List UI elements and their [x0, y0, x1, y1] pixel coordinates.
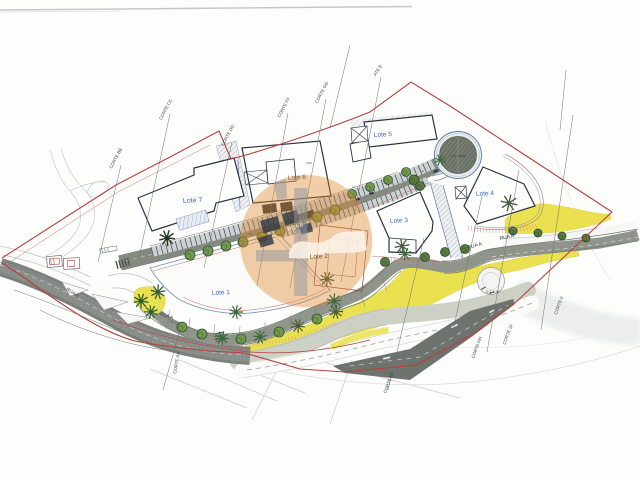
svg-text:cv: cv: [352, 185, 356, 189]
svg-text:Lote 6: Lote 6: [288, 174, 307, 182]
svg-text:C.C. 49.00: C.C. 49.00: [451, 154, 466, 158]
svg-text:Lote 4: Lote 4: [476, 190, 495, 198]
svg-text:cv: cv: [249, 232, 253, 236]
svg-text:Lote 2: Lote 2: [310, 253, 329, 261]
svg-text:ev: ev: [421, 169, 425, 173]
svg-text:Lote 1: Lote 1: [212, 289, 231, 297]
svg-text:Lote 5: Lote 5: [374, 131, 393, 139]
svg-text:D.T. 6.00: D.T. 6.00: [486, 290, 500, 294]
svg-text:4.50: 4.50: [306, 161, 312, 165]
svg-text:Lote 7: Lote 7: [183, 197, 203, 205]
svg-text:Lote 3: Lote 3: [390, 217, 409, 225]
